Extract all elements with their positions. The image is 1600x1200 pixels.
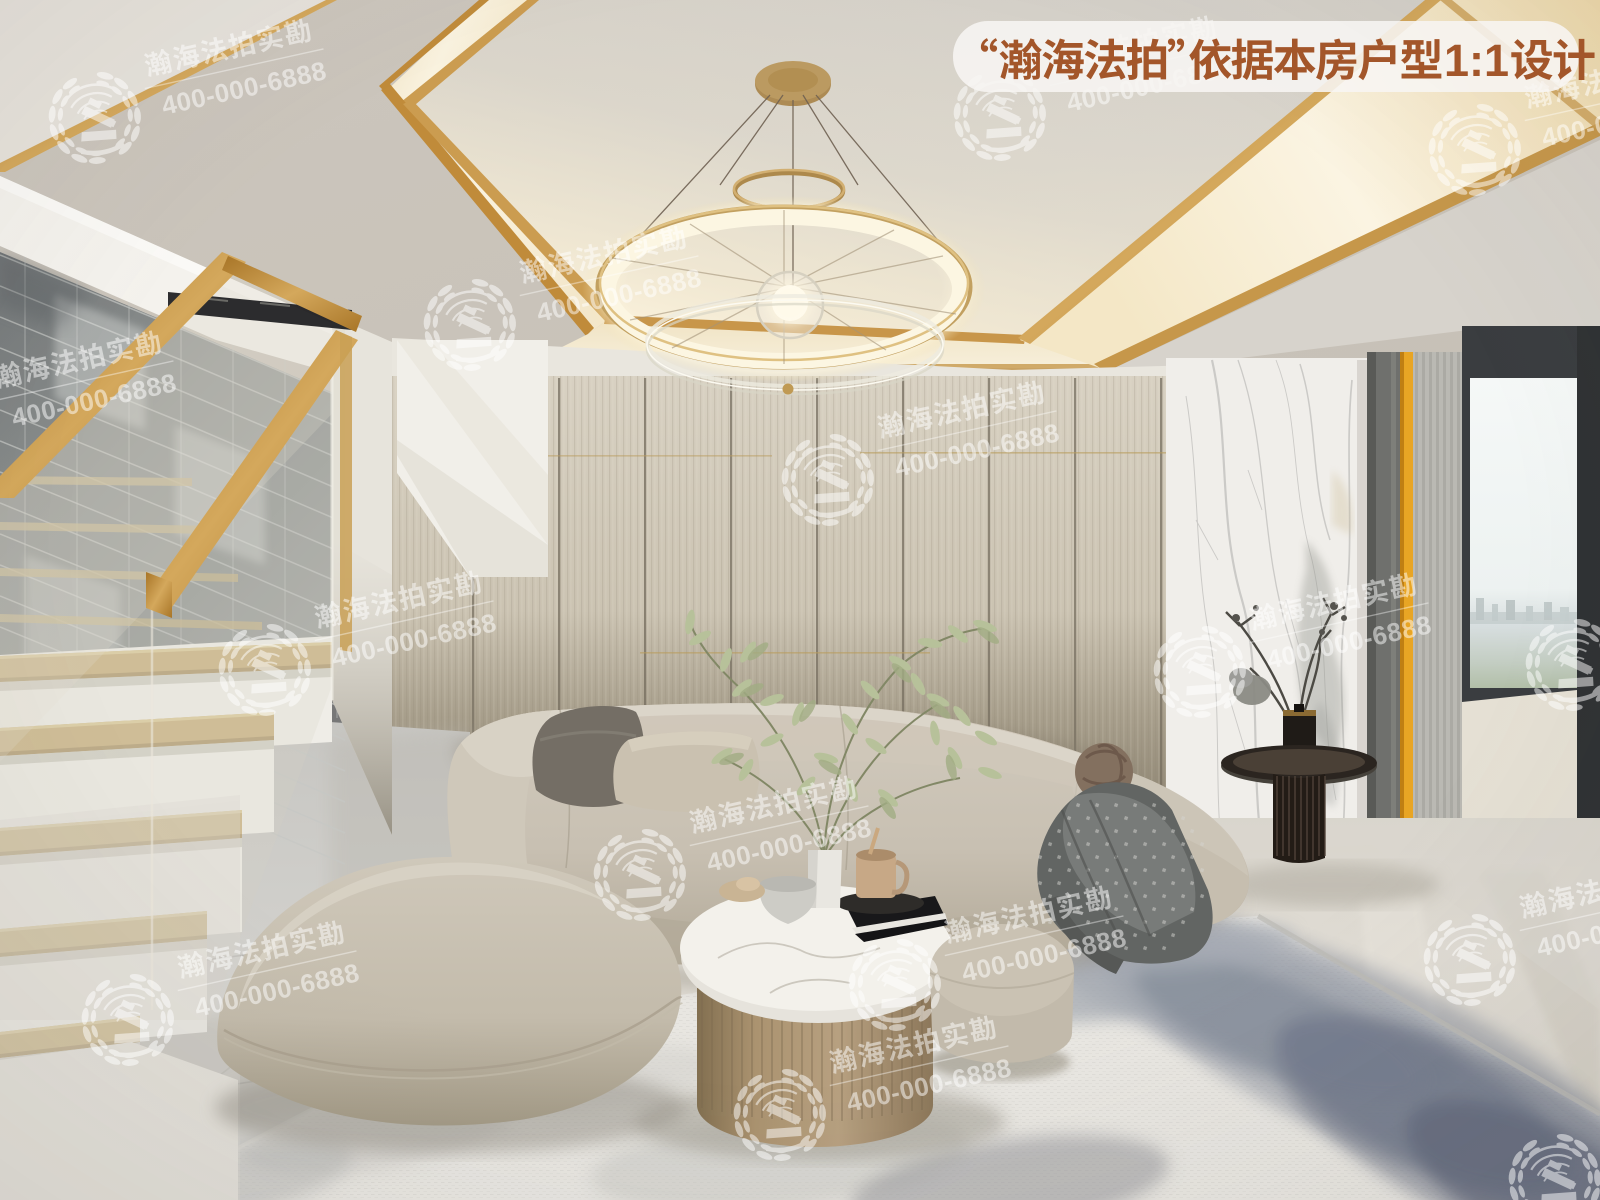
svg-text:1:1: 1:1 xyxy=(1444,35,1509,86)
